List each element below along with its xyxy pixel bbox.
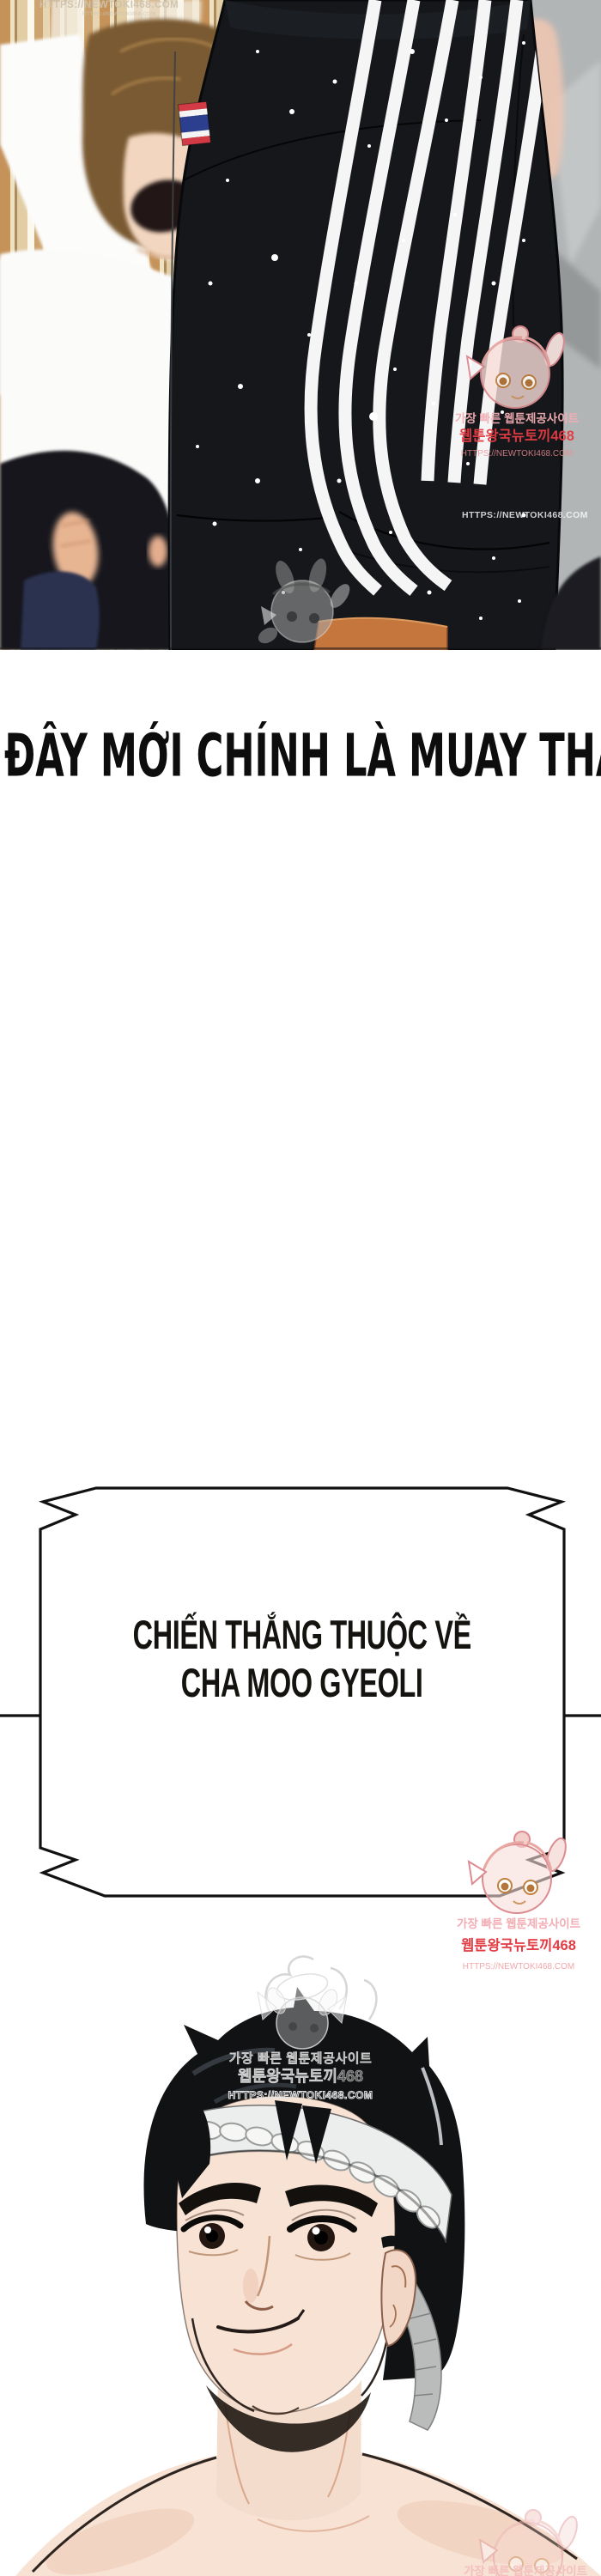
mc-portrait: 가장 빠른 웹툰제공사이트 웹툰왕국뉴토끼468 HTTPS://NEWTOKI…: [15, 1956, 601, 2576]
stamp-tagline-text: 가장 빠른 웹툰제공사이트: [455, 411, 580, 425]
grey-watermark-url-text: HTTPS://NEWTOKI468.COM: [228, 2089, 373, 2101]
blurred-face: [149, 536, 167, 567]
grey-watermark-tagline-text: 가장 빠른 웹툰제공사이트: [229, 2050, 373, 2066]
site-url-watermark-small: HTTPS://NEWTOKI468.COM: [82, 11, 155, 17]
webtoon-page: 가장 빠른 웹툰제공사이트 웹툰왕국뉴토끼468 HTTPS://NEWTOKI…: [0, 0, 601, 2576]
stamp-url-text: HTTPS://NEWTOKI468.COM: [463, 1962, 574, 1971]
stamp-tagline-text: 가장 빠른 웹툰제공사이트: [457, 1917, 581, 1930]
panel-bottom-edge: [0, 647, 601, 649]
caption-text: ĐÂY MỚI CHÍNH LÀ MUAY THÁI!: [4, 721, 601, 790]
thailand-flag-icon: [179, 101, 211, 145]
grey-watermark-sitename-text: 웹툰왕국뉴토끼468: [238, 2068, 363, 2085]
stamp-sitename-text: 웹툰왕국뉴토끼468: [459, 428, 574, 444]
banner-line-1: CHIẾN THẮNG THUỘC VỀ: [133, 1613, 471, 1656]
banner-line-2: CHA MOO GYEOLI: [181, 1662, 423, 1704]
caption-banner: ĐÂY MỚI CHÍNH LÀ MUAY THÁI!: [0, 721, 601, 790]
stamp-tagline-text: 가장 빠른 웹툰제공사이트: [464, 2564, 588, 2576]
site-url-watermark: HTTPS://NEWTOKI468.COM: [39, 0, 179, 10]
webtoon-artwork: 가장 빠른 웹툰제공사이트 웹툰왕국뉴토끼468 HTTPS://NEWTOKI…: [0, 0, 601, 2576]
stamp-sitename-text: 웹툰왕국뉴토끼468: [461, 1937, 576, 1953]
speech-banner-text: CHIẾN THẮNG THUỘC VỀ CHA MOO GYEOLI: [40, 1613, 564, 1702]
panel-1: 가장 빠른 웹툰제공사이트 웹툰왕국뉴토끼468 HTTPS://NEWTOKI…: [0, 0, 601, 650]
site-url-watermark: HTTPS://NEWTOKI468.COM: [462, 510, 588, 520]
navy-clothes: [21, 572, 100, 650]
stamp-url-text: HTTPS://NEWTOKI468.COM: [461, 449, 573, 459]
